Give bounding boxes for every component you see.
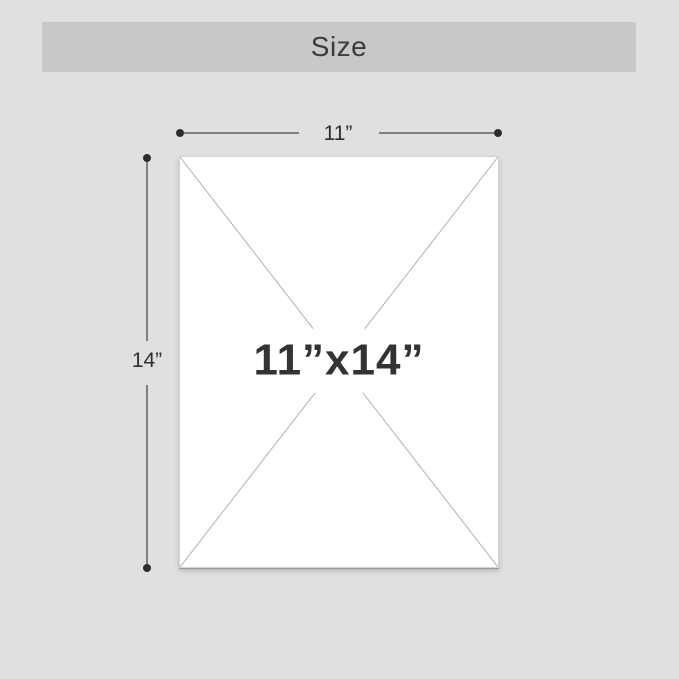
size-diagram: Size 11” 14” 11”x14” (0, 0, 679, 679)
height-dimension: 14” (117, 154, 177, 572)
dimension-line-right (379, 132, 494, 134)
dimension-line-bottom (146, 385, 148, 564)
dimension-endpoint-dot-bottom (143, 564, 151, 572)
height-label: 14” (132, 341, 162, 385)
page-title: Size (311, 31, 367, 63)
dimension-endpoint-dot-right (494, 129, 502, 137)
dimension-line-left (184, 132, 299, 134)
image-placeholder: 11”x14” (179, 156, 499, 568)
size-label: 11”x14” (242, 329, 437, 393)
dimension-endpoint-dot-left (176, 129, 184, 137)
dimension-endpoint-dot-top (143, 154, 151, 162)
dimension-line-top (146, 162, 148, 341)
width-dimension: 11” (176, 124, 502, 142)
header-bar: Size (42, 22, 636, 72)
width-label: 11” (299, 123, 380, 144)
